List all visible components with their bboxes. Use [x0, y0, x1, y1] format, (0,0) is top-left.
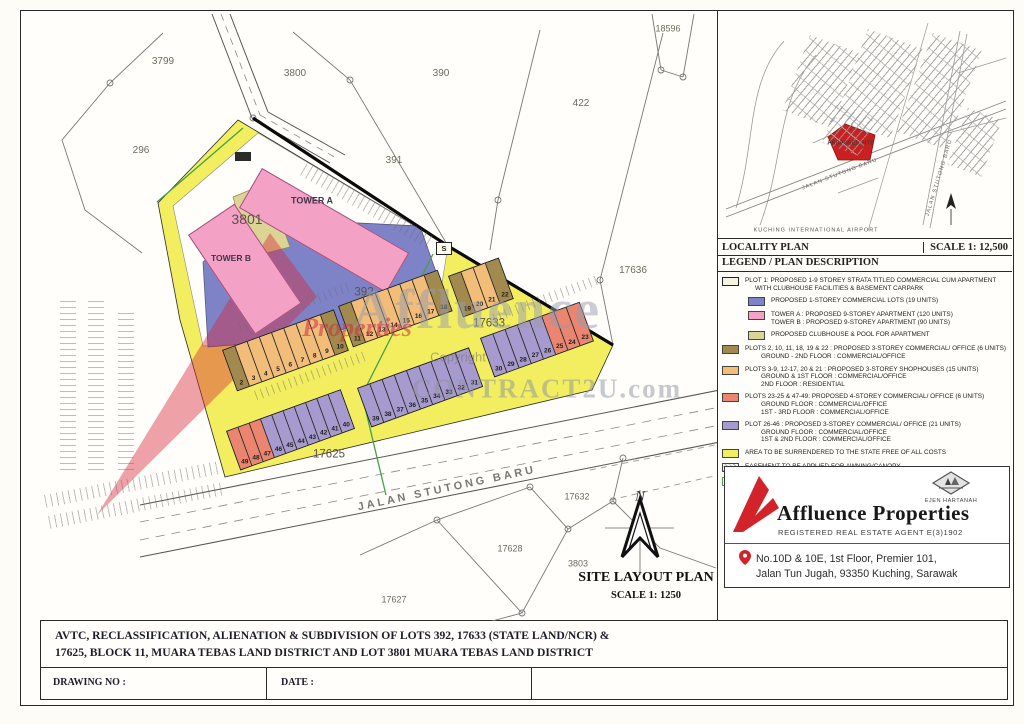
legend-swatch-olive [722, 345, 739, 354]
plot-number: 49 [241, 459, 248, 466]
legend-entry-text: TOWER A : PROPOSED 9-STOREY APARTMENT (1… [771, 311, 953, 326]
date-label: DATE : [281, 677, 314, 688]
legend-entry-text: AREA TO BE SURRENDERED TO THE STATE FREE… [745, 449, 946, 457]
location-pin-icon [739, 550, 751, 565]
agency-address-line-1: No.10D & 10E, 1st Floor, Premier 101, [739, 550, 1001, 567]
lot-3803: 3803 [568, 560, 588, 569]
plot-number: 8 [313, 353, 317, 360]
plot-number: 9 [325, 348, 329, 355]
plot-number: 39 [372, 415, 379, 422]
plot-number: 48 [252, 455, 259, 462]
locality-scale: SCALE 1: 12,500 [923, 242, 1008, 253]
legend-entry: PROPOSED CLUBHOUSE & POOL FOR APARTMENT [748, 331, 1012, 340]
plot-number: 37 [397, 407, 404, 414]
title-block: AVTC, RECLASSIFICATION, ALIENATION & SUB… [40, 620, 1008, 700]
legend-swatch-plot1 [722, 277, 739, 286]
ejen-hartanah-badge: EJEN HARTANAH [919, 471, 983, 504]
title-block-divider-v2 [531, 667, 532, 699]
lot-17628: 17628 [497, 545, 522, 554]
north-label: N [635, 490, 645, 505]
site-plan-title: SITE LAYOUT PLAN [578, 571, 713, 585]
substation-label: S [441, 244, 446, 253]
site-plan: S Affluence Properties Copyright CONTRAC… [22, 13, 717, 621]
plot-number: 41 [331, 426, 338, 433]
lot-391: 391 [386, 156, 403, 166]
drawing-title-line-2: 17625, BLOCK 11, MUARA TEBAS LAND DISTRI… [55, 644, 609, 661]
affluence-arrow-icon [729, 472, 781, 534]
carpark-hatch-west-3 [118, 310, 134, 470]
plot-number: 6 [288, 362, 292, 369]
legend-swatch-red [722, 393, 739, 402]
carpark-hatch-west-1 [60, 300, 76, 470]
title-block-divider-v1 [266, 667, 267, 699]
plot-number: 40 [343, 422, 350, 429]
plot-number: 26 [544, 348, 551, 355]
legend-entries: PLOT 1: PROPOSED 1-9 STOREY STRATA TITLE… [722, 277, 1012, 486]
lot-17627: 17627 [381, 596, 406, 605]
agency-registration: REGISTERED REAL ESTATE AGENT E(3)1902 [778, 528, 963, 537]
lot-296: 296 [133, 146, 150, 156]
plot-number: 3 [252, 375, 256, 382]
agency-address-line-2: Jalan Tun Jugah, 93350 Kuching, Sarawak [739, 567, 1001, 582]
legend-entry-text: PLOTS 23-25 & 47-49: PROPOSED 4-STOREY C… [745, 393, 984, 416]
drawing-title-line-1: AVTC, RECLASSIFICATION, ALIENATION & SUB… [55, 627, 609, 644]
plot-number: 2 [240, 379, 244, 386]
tower-b-label: TOWER B [211, 254, 251, 263]
plot-number: 43 [308, 434, 315, 441]
utility-box [235, 152, 251, 161]
watermark-copyright: Copyright [430, 351, 486, 364]
carpark-hatch-west-2 [88, 300, 104, 470]
lot-3800: 3800 [284, 69, 306, 79]
legend-entry: PLOT 26-46 : PROPOSED 3-STOREY COMMERCIA… [722, 421, 1012, 444]
watermark-contract2u: CONTRACT2U.com [412, 376, 682, 403]
site-plan-scale: SCALE 1: 1250 [611, 591, 681, 602]
legend-entry: TOWER A : PROPOSED 9-STOREY APARTMENT (1… [748, 311, 1012, 326]
plot-number: 29 [507, 361, 514, 368]
plot-number: 30 [495, 365, 502, 372]
legend-entry-text: PLOT 1: PROPOSED 1-9 STOREY STRATA TITLE… [745, 277, 996, 292]
plot-number: 27 [532, 352, 539, 359]
drawing-no-label: DRAWING NO : [53, 677, 126, 688]
locality-caption: LOCALITY PLAN SCALE 1: 12,500 [718, 238, 1012, 256]
legend-entry-text: PLOT 26-46 : PROPOSED 3-STOREY COMMERCIA… [745, 421, 961, 444]
plot-number: 28 [520, 357, 527, 364]
legend-title: LEGEND / PLAN DESCRIPTION [718, 257, 1012, 272]
plot-number: 45 [286, 442, 293, 449]
plot-number: 10 [336, 344, 343, 351]
plot-number: 5 [276, 366, 280, 373]
tower-a-label: TOWER A [291, 197, 333, 206]
lot-17625: 17625 [313, 449, 345, 461]
lot-17632: 17632 [564, 493, 589, 502]
legend-entry: PROPOSED 1-STOREY COMMERCIAL LOTS (19 UN… [748, 297, 1012, 306]
plot-number: 46 [274, 446, 281, 453]
legend-entry: PLOTS 23-25 & 47-49: PROPOSED 4-STOREY C… [722, 393, 1012, 416]
lot-18596: 18596 [655, 25, 680, 34]
legend-swatch-pink [748, 311, 765, 320]
plot-number: 7 [301, 357, 305, 364]
watermark-properties: Properties [302, 315, 412, 341]
lot-17636: 17636 [619, 266, 647, 276]
lot-3801: 3801 [231, 212, 262, 226]
proposed-site-label: PROPOSED SITE [828, 142, 874, 147]
plot-number: 47 [263, 450, 270, 457]
plot-number: 42 [320, 430, 327, 437]
legend-swatch-clubhouse [748, 331, 765, 340]
legend-entry-text: PLOTS 3-9, 12-17, 20 & 21 : PROPOSED 3-S… [745, 366, 978, 389]
airport-label: KUCHING INTERNATIONAL AIRPORT [754, 228, 879, 234]
drawing-title: AVTC, RECLASSIFICATION, ALIENATION & SUB… [55, 627, 609, 661]
legend-entry-text: PLOTS 2, 10, 11, 18, 19 & 22 : PROPOSED … [745, 345, 1006, 360]
legend-entry-text: PROPOSED 1-STOREY COMMERCIAL LOTS (19 UN… [771, 297, 938, 305]
agency-address: No.10D & 10E, 1st Floor, Premier 101, Ja… [725, 543, 1009, 587]
legend-swatch-orange [722, 366, 739, 375]
title-block-divider [41, 667, 1007, 668]
agency-name: Affluence Properties [777, 501, 969, 526]
plot-number: 25 [556, 343, 563, 350]
locality-title: LOCALITY PLAN [722, 242, 809, 253]
legend-swatch-yellow [722, 449, 739, 458]
locality-plan: PROPOSED SITE JALAN STUTONG BARU JALAN S… [718, 13, 1012, 238]
legend-entry: PLOTS 3-9, 12-17, 20 & 21 : PROPOSED 3-S… [722, 366, 1012, 389]
ejen-hartanah-icon [931, 471, 971, 497]
legend-swatch-purple [722, 421, 739, 430]
plot-number: 4 [264, 370, 268, 377]
locality-north-arrow [946, 193, 956, 225]
agency-card: EJEN HARTANAH Affluence Properties REGIS… [724, 466, 1010, 588]
plot-number: 44 [297, 438, 304, 445]
legend-entry: PLOT 1: PROPOSED 1-9 STOREY STRATA TITLE… [722, 277, 1012, 292]
substation-box: S [436, 242, 452, 255]
lot-3799: 3799 [152, 57, 174, 67]
lot-390: 390 [433, 69, 450, 79]
lot-422: 422 [573, 99, 590, 109]
legend-entry: AREA TO BE SURRENDERED TO THE STATE FREE… [722, 449, 1012, 458]
plot-number: 38 [384, 411, 391, 418]
legend-entry: PLOTS 2, 10, 11, 18, 19 & 22 : PROPOSED … [722, 345, 1012, 360]
legend-entry-text: PROPOSED CLUBHOUSE & POOL FOR APARTMENT [771, 331, 930, 339]
legend-swatch-blue [748, 297, 765, 306]
